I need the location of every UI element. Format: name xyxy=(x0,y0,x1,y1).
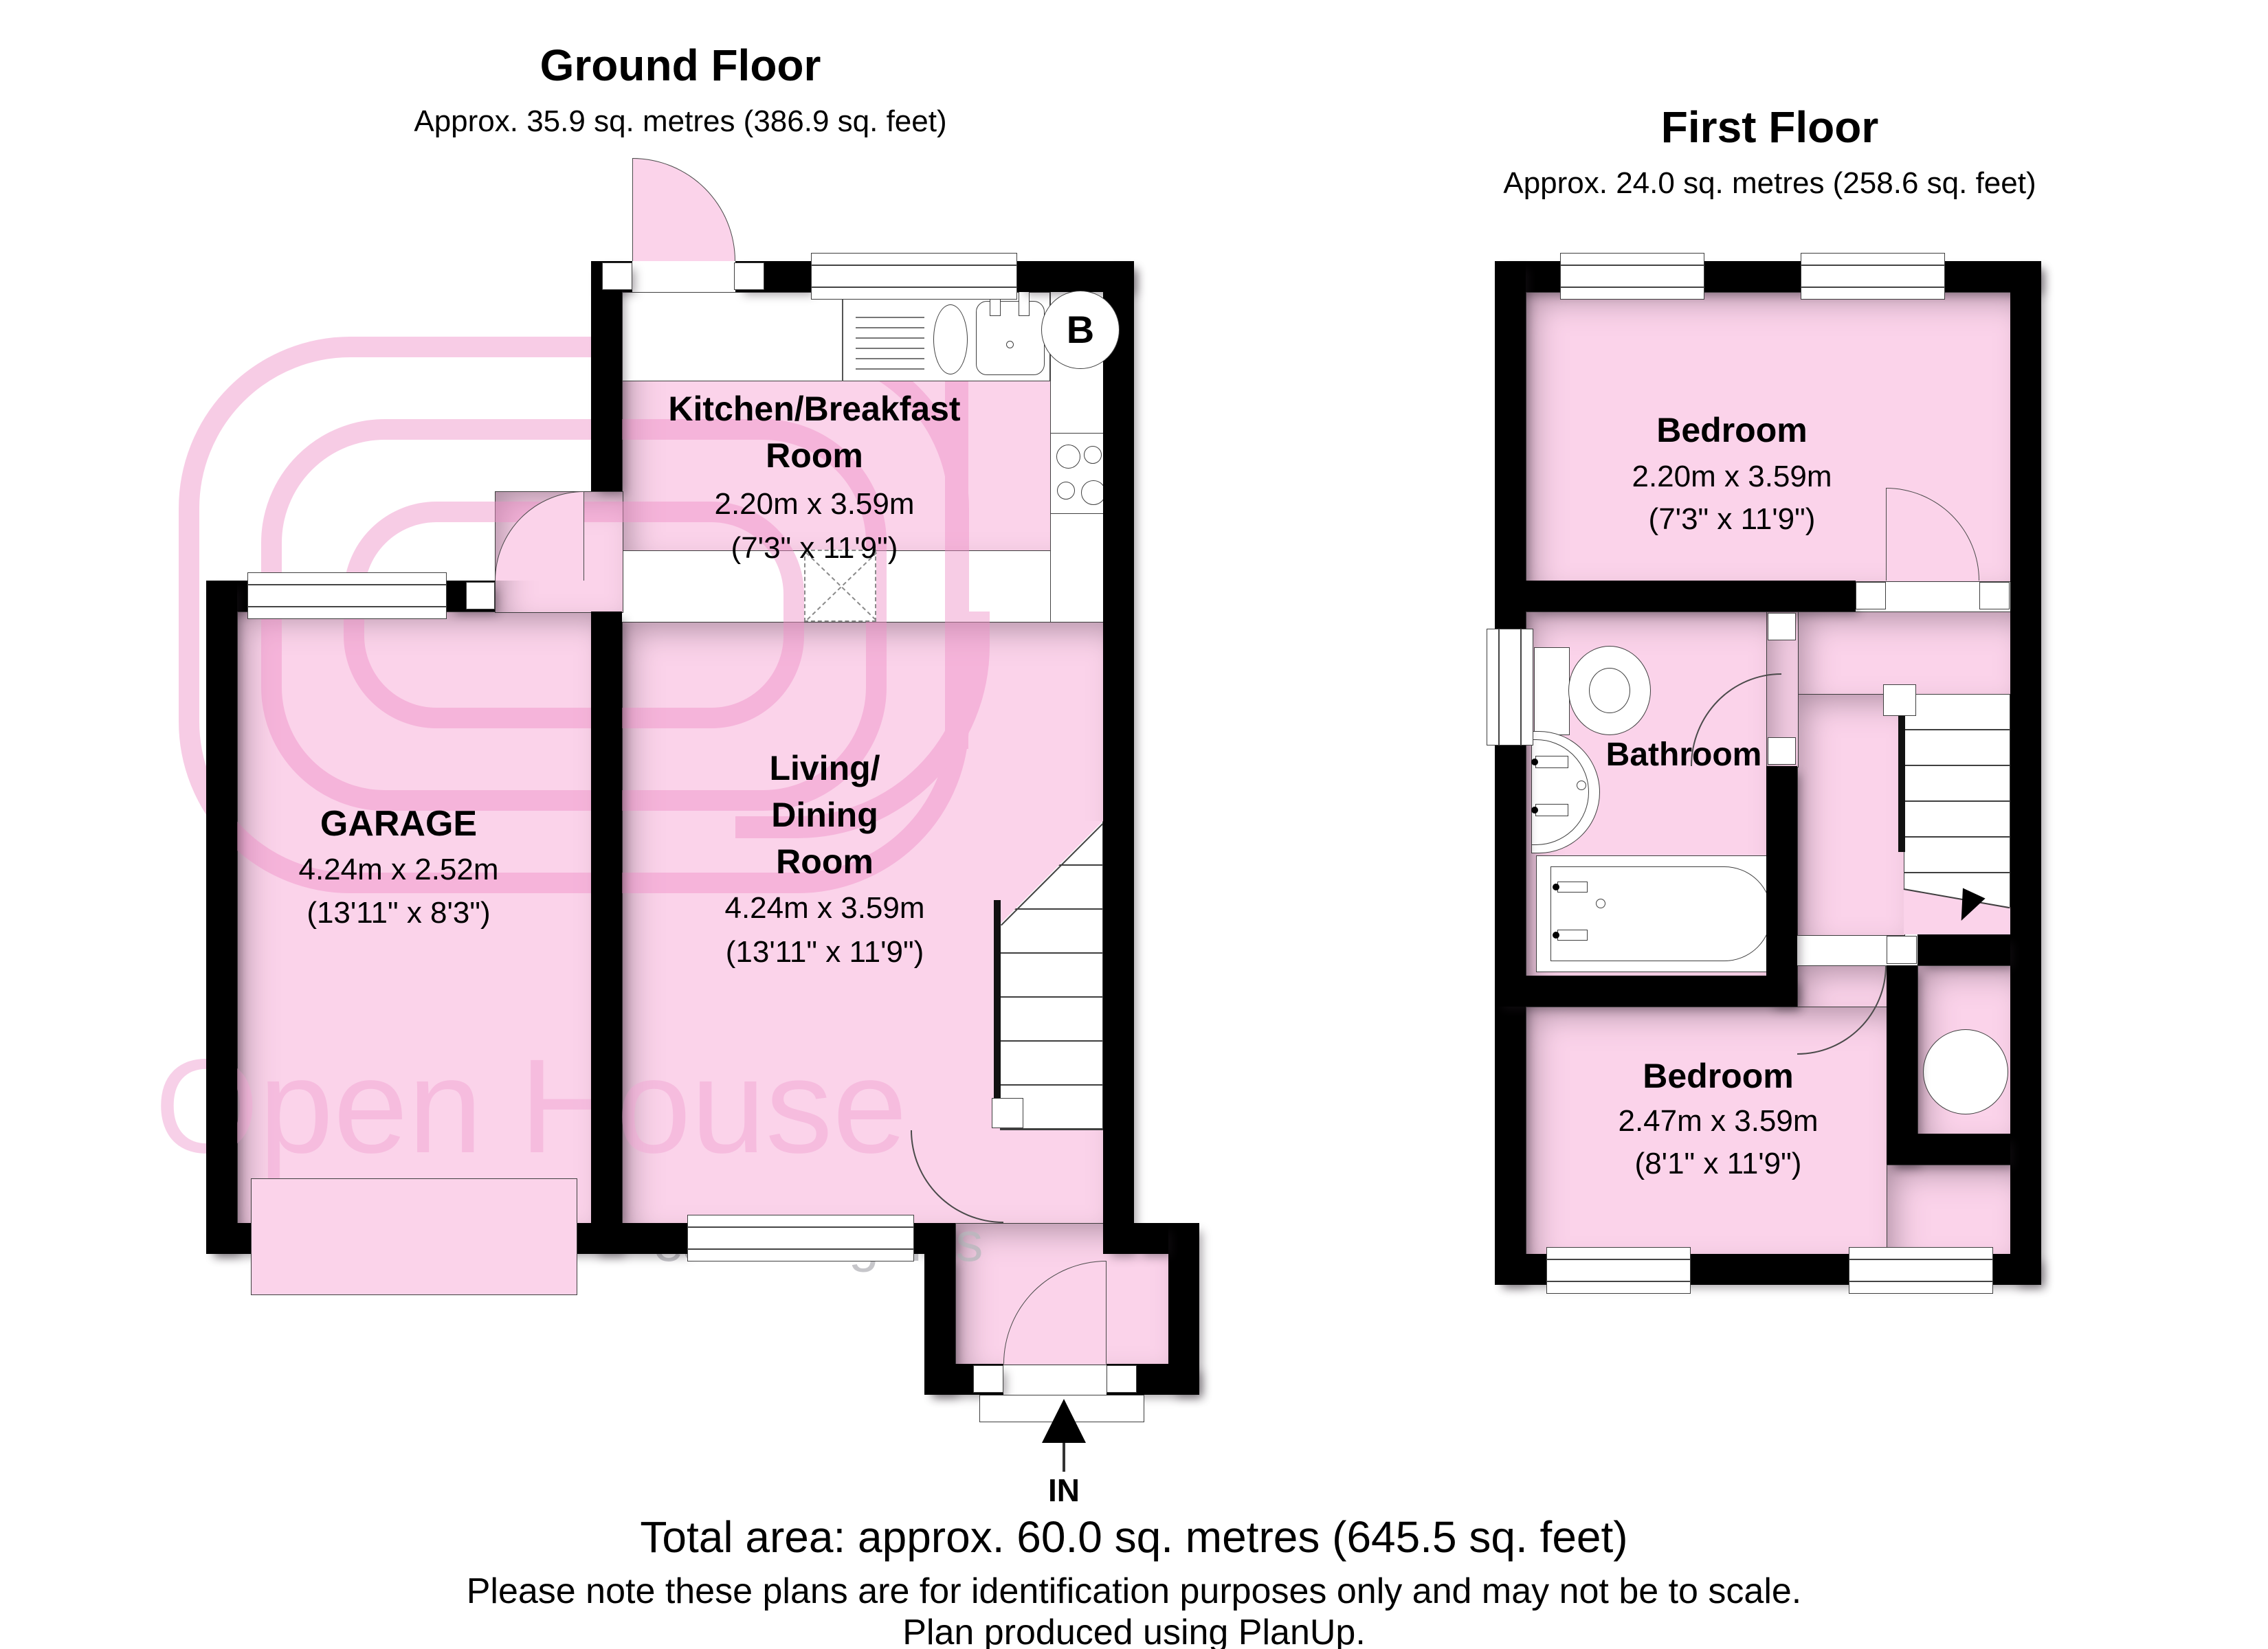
water-cylinder xyxy=(1923,1029,2008,1114)
toilet-cistern xyxy=(1534,647,1570,735)
kitchen-dims-imperial: (7'3" x 11'9") xyxy=(643,530,986,567)
tap-dot xyxy=(1553,932,1559,939)
boiler-indicator: B xyxy=(1041,291,1120,369)
stair-newel-post xyxy=(1883,684,1916,716)
stair-newel-post xyxy=(992,1098,1023,1128)
sink-drain xyxy=(1006,341,1014,348)
bedroom-top-name: Bedroom xyxy=(1560,410,1904,451)
wall-segment xyxy=(1495,976,1797,1007)
window-bedroom-top-right xyxy=(1801,253,1945,300)
kitchen-sink xyxy=(976,301,1045,375)
bedroom-top-dims-metric: 2.20m x 3.59m xyxy=(1560,459,1904,495)
door-threshold xyxy=(1887,936,1917,964)
total-area-text: Total area: approx. 60.0 sq. metres (645… xyxy=(0,1512,2268,1562)
wall-segment xyxy=(591,612,622,1223)
ground-floor-title: Ground Floor xyxy=(337,40,1024,91)
wall-segment xyxy=(1168,1223,1199,1395)
counter-divider-line xyxy=(842,292,843,381)
bath-tap xyxy=(1557,882,1588,893)
door-threshold xyxy=(973,1365,1003,1393)
window-bedroom-bottom-left xyxy=(1546,1247,1691,1294)
living-name-line1: Living/ xyxy=(653,748,997,789)
sink-tap xyxy=(1535,756,1568,768)
floorplan-canvas: Ground Floor Approx. 35.9 sq. metres (38… xyxy=(0,0,2268,1649)
entrance-in-label: IN xyxy=(995,1472,1133,1509)
bedroom-bottom-name: Bedroom xyxy=(1546,1055,1890,1097)
wall-segment xyxy=(591,261,622,491)
door-threshold xyxy=(1768,613,1796,640)
tap-dot xyxy=(1531,759,1538,765)
window-bedroom-bottom-right xyxy=(1849,1247,1993,1294)
bedroom-top-dims-imperial: (7'3" x 11'9") xyxy=(1560,502,1904,538)
hob-burner-3 xyxy=(1057,482,1075,500)
stair-rail xyxy=(994,900,1001,1106)
kitchen-name-line2: Room xyxy=(643,435,986,476)
door-threshold xyxy=(1856,582,1886,609)
produced-by-text: Plan produced using PlanUp. xyxy=(0,1612,2268,1649)
wall-segment xyxy=(1766,766,1797,1007)
kitchen-name-line1: Kitchen/Breakfast xyxy=(643,388,986,429)
first-floor-subtitle: Approx. 24.0 sq. metres (258.6 sq. feet) xyxy=(1426,166,2113,201)
bathroom-name: Bathroom xyxy=(1588,735,1780,775)
living-dims-metric: 4.24m x 3.59m xyxy=(653,890,997,927)
wall-segment xyxy=(1917,934,2010,965)
hob-burner-1 xyxy=(1056,445,1080,469)
window-kitchen xyxy=(811,253,1017,300)
stair-rail xyxy=(1898,694,1905,852)
garage-up-and-over-door xyxy=(251,1178,577,1295)
hob-burner-4 xyxy=(1081,480,1106,505)
kitchen-dims-metric: 2.20m x 3.59m xyxy=(643,486,986,523)
living-name-line2: Dining xyxy=(653,794,997,835)
bedroom-bottom-dims-metric: 2.47m x 3.59m xyxy=(1546,1103,1890,1140)
living-dims-imperial: (13'11" x 11'9") xyxy=(653,934,997,971)
bath-drain xyxy=(1596,899,1605,908)
wall-segment xyxy=(2010,261,2041,1285)
room-bedroom-bottom-area xyxy=(1887,1165,2012,1255)
wall-segment xyxy=(1134,1223,1168,1254)
draining-board xyxy=(856,308,924,371)
wall-segment xyxy=(1526,581,1856,612)
entrance-arrow-stem xyxy=(1063,1443,1065,1472)
door-threshold xyxy=(1979,582,2010,609)
ground-floor-subtitle: Approx. 35.9 sq. metres (386.9 sq. feet) xyxy=(337,104,1024,139)
room-landing-area xyxy=(1797,612,2012,695)
first-floor-title: First Floor xyxy=(1426,102,2113,153)
hob-burner-2 xyxy=(1084,446,1102,464)
living-name-line3: Room xyxy=(653,841,997,882)
window-bedroom-top-left xyxy=(1560,253,1704,300)
bedroom-bottom-dims-imperial: (8'1" x 11'9") xyxy=(1546,1146,1890,1182)
kitchen-back-door-arc xyxy=(632,158,735,261)
window-living xyxy=(687,1215,914,1261)
door-threshold xyxy=(734,262,764,290)
wall-segment xyxy=(1103,261,1134,1254)
toilet-bowl-inner xyxy=(1589,668,1630,713)
wall-segment xyxy=(1887,1134,2010,1165)
bath-tap xyxy=(1557,930,1588,941)
tap-dot xyxy=(1553,884,1559,890)
window-bathroom xyxy=(1487,629,1533,745)
door-threshold xyxy=(1107,1365,1137,1393)
tap-dot xyxy=(1531,807,1538,814)
room-landing-area xyxy=(1797,694,1905,936)
door-threshold xyxy=(602,262,632,290)
sink-drain xyxy=(1577,781,1586,790)
drainer-oval xyxy=(933,304,968,374)
window-garage xyxy=(247,572,447,619)
wall-segment xyxy=(914,1223,955,1254)
door-threshold xyxy=(466,582,495,609)
garage-dims-imperial: (13'11" x 8'3") xyxy=(227,895,570,932)
wall-segment xyxy=(1495,261,1526,1285)
garage-name: GARAGE xyxy=(227,803,570,845)
garage-dims-metric: 4.24m x 2.52m xyxy=(227,852,570,888)
sink-tap xyxy=(1535,804,1568,816)
disclaimer-text: Please note these plans are for identifi… xyxy=(0,1571,2268,1612)
wall-segment xyxy=(591,1223,687,1254)
bathtub-inner xyxy=(1550,866,1772,961)
entrance-arrow-icon xyxy=(1042,1399,1086,1443)
